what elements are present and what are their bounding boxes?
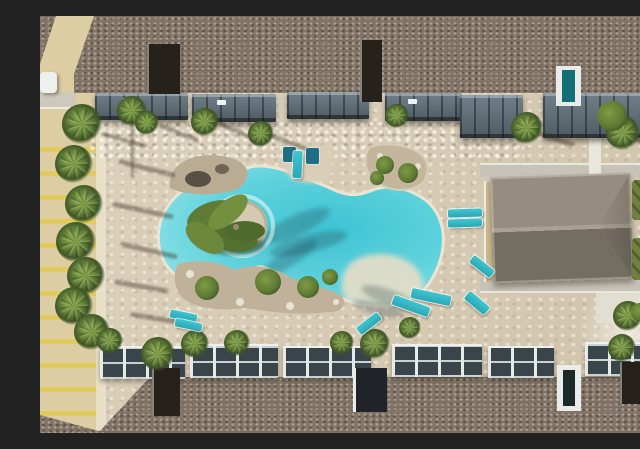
palm-tree xyxy=(56,222,96,262)
patio-furniture xyxy=(408,99,417,104)
palm-tree xyxy=(608,334,636,362)
palm-tree xyxy=(135,111,159,135)
pool-lounger xyxy=(306,148,319,164)
roof-notch xyxy=(556,66,581,106)
aerial-pool-photo xyxy=(40,16,640,433)
shrub xyxy=(370,171,384,185)
clubhouse-roof xyxy=(490,173,634,284)
clubhouse-hip-end xyxy=(583,173,634,281)
palm-tree xyxy=(399,317,421,339)
roof-notch xyxy=(147,44,180,94)
palm-tree xyxy=(191,108,219,136)
water-feature xyxy=(185,171,211,187)
pool-lounger xyxy=(448,218,482,227)
shrub xyxy=(597,101,627,131)
palm-tree xyxy=(385,104,409,128)
balcony xyxy=(488,346,554,378)
bottom-building-roof xyxy=(62,377,640,433)
palm-tree xyxy=(65,185,103,223)
stairwell-opening xyxy=(562,70,575,102)
balcony xyxy=(392,344,482,377)
roof-notch xyxy=(360,40,382,102)
pool-lounger xyxy=(448,208,482,217)
grass-patch xyxy=(632,238,640,280)
shrub xyxy=(255,269,281,295)
shrub xyxy=(322,269,338,285)
shrub xyxy=(398,163,418,183)
rock-detail xyxy=(215,164,229,174)
roof-notch xyxy=(152,368,180,416)
shrub xyxy=(297,276,319,298)
palm-tree xyxy=(141,337,175,371)
patio-furniture xyxy=(217,100,226,105)
palm-tree xyxy=(511,112,543,144)
palm-tree xyxy=(62,104,102,144)
palm-tree xyxy=(224,330,250,356)
roof-notch xyxy=(557,365,581,411)
balcony xyxy=(287,92,369,119)
palm-tree xyxy=(55,145,93,183)
pool-lounger xyxy=(292,151,302,178)
palm-tree xyxy=(97,328,123,354)
palm-tree xyxy=(330,331,354,355)
palm-tree xyxy=(248,121,274,147)
shrub xyxy=(195,276,219,300)
roof-notch xyxy=(353,368,387,412)
stairwell-opening xyxy=(563,370,575,407)
palm-tree xyxy=(360,329,390,359)
roof-notch xyxy=(620,362,640,404)
grass-patch xyxy=(632,180,640,220)
palm-tree xyxy=(181,330,209,358)
